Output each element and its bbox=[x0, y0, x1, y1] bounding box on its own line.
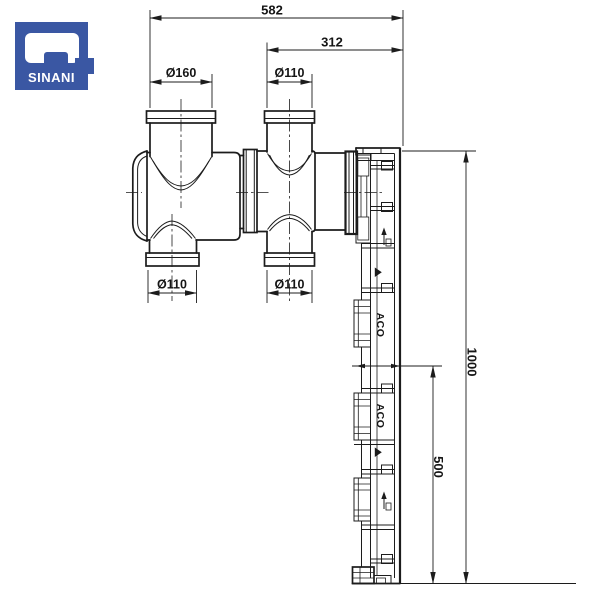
dim-d110-top-label: Ø110 bbox=[275, 66, 305, 80]
dim-582-label: 582 bbox=[261, 3, 283, 18]
dimension-d160: Ø160 bbox=[150, 66, 212, 82]
triangle-marker-icon bbox=[375, 448, 382, 458]
dimension-500: 500 bbox=[431, 366, 446, 584]
flow-arrow-icon bbox=[381, 492, 391, 511]
dimension-d110-bottom-left: Ø110 bbox=[148, 278, 197, 294]
dimension-312: 312 bbox=[267, 35, 403, 51]
dim-d110-br-label: Ø110 bbox=[275, 278, 305, 292]
channel-foot bbox=[353, 567, 401, 584]
dim-d160-label: Ø160 bbox=[166, 66, 197, 80]
page: SINANI bbox=[0, 0, 600, 600]
rib-cluster-2 bbox=[354, 393, 371, 440]
dimension-d110-bottom-right: Ø110 bbox=[267, 278, 312, 294]
dimension-582: 582 bbox=[150, 3, 403, 19]
drainage-channel: ACO ACO bbox=[352, 148, 442, 584]
triangle-marker-icon bbox=[375, 268, 382, 278]
pipe-manifold bbox=[126, 99, 385, 301]
dimension-d110-top: Ø110 bbox=[267, 66, 312, 82]
outlet-stub-bottom-left bbox=[146, 240, 199, 266]
rib-cluster-3 bbox=[354, 478, 371, 521]
left-cross-body bbox=[147, 153, 240, 241]
rib-cluster-1 bbox=[354, 300, 371, 347]
channel-brand-text: ACO bbox=[374, 404, 386, 429]
dim-500-label: 500 bbox=[431, 456, 446, 478]
dim-1000-label: 1000 bbox=[465, 348, 480, 377]
dim-312-label: 312 bbox=[321, 35, 343, 50]
technical-drawing: ACO ACO bbox=[0, 0, 600, 600]
channel-brand-text: ACO bbox=[374, 313, 386, 338]
mid-marker-line bbox=[352, 364, 442, 368]
bell-socket bbox=[133, 151, 147, 241]
dimension-1000: 1000 bbox=[465, 151, 480, 584]
right-cross-body bbox=[257, 151, 346, 232]
dim-d110-bl-label: Ø110 bbox=[157, 278, 187, 292]
coupling-sleeve bbox=[240, 150, 257, 233]
